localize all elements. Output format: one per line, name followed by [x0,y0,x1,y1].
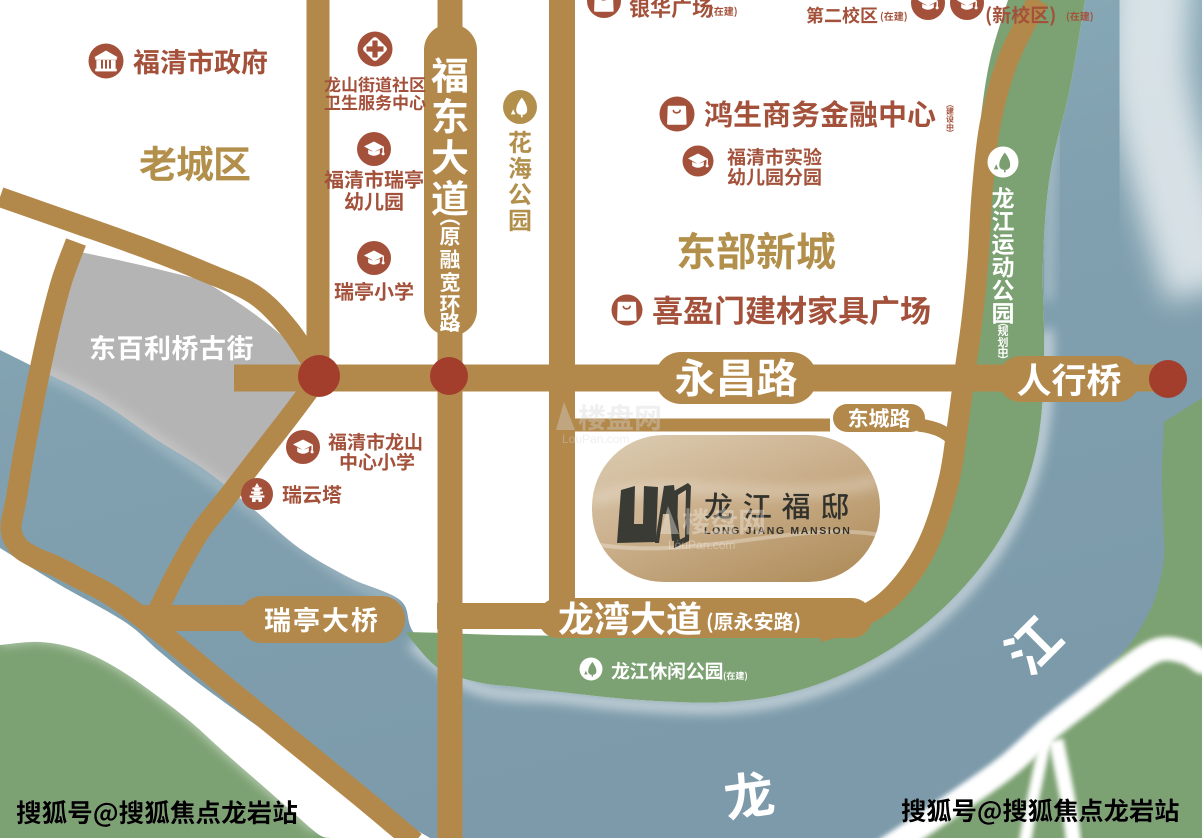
svg-text:LouPan.com: LouPan.com [668,538,735,552]
svg-text:LouPan.com: LouPan.com [562,432,629,446]
